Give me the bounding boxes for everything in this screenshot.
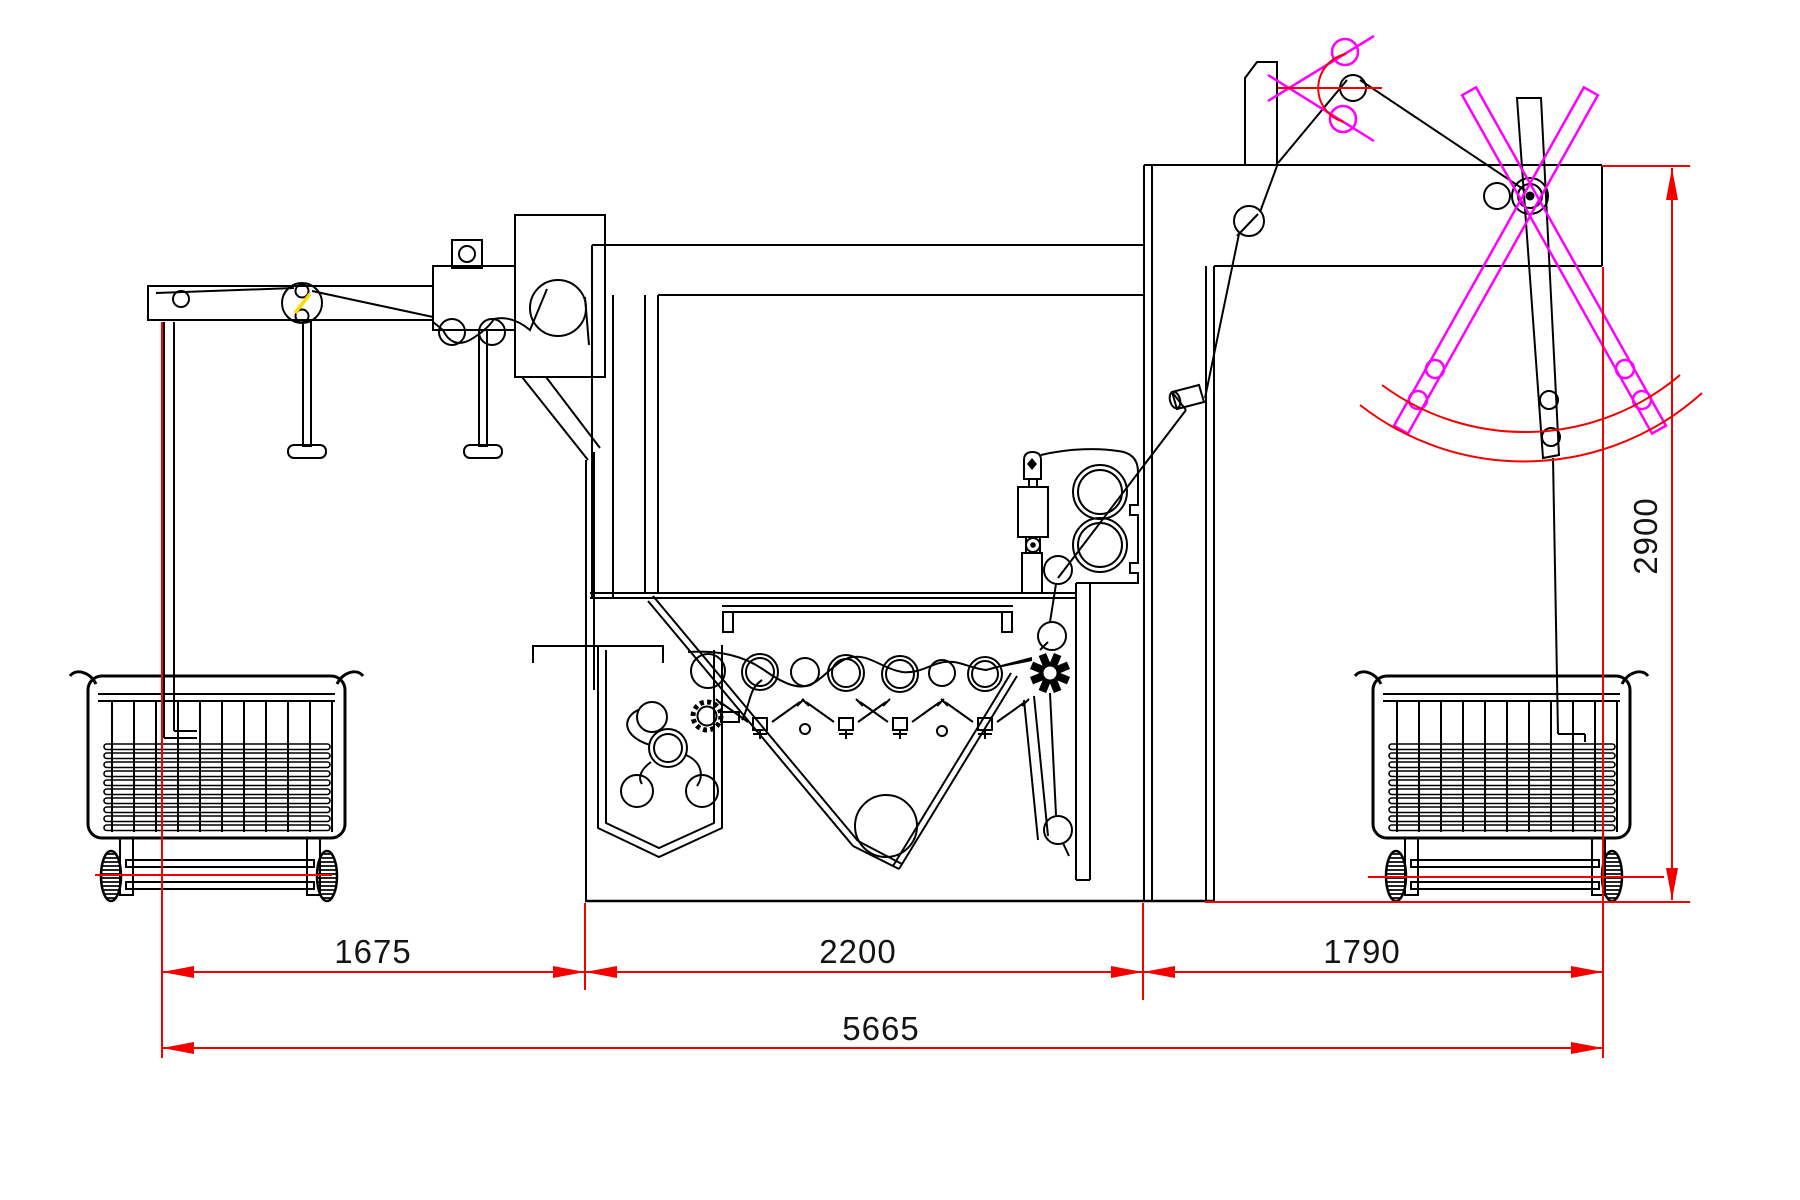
can-changer-alt-positions [1268, 36, 1666, 434]
sliver-drop-line [1553, 458, 1585, 742]
machine-linework [70, 62, 1648, 901]
dim-label-left-span: 1675 [334, 933, 411, 970]
pivot-pulley [1484, 183, 1510, 209]
calender-roller-bottom [1073, 518, 1127, 572]
calender-roller-top [1073, 465, 1127, 519]
technical-drawing: 1675 2200 1790 5665 2900 [0, 0, 1800, 1200]
sliver-can-left [70, 672, 363, 901]
dimension-layer [95, 54, 1702, 1058]
dim-label-center-span: 2200 [819, 933, 896, 970]
funnel-wheel [855, 795, 917, 857]
technical-drawing-canvas: 1675 2200 1790 5665 2900 [0, 0, 1800, 1200]
valve-dot [1027, 458, 1037, 470]
swing-arm-position-left [1394, 87, 1598, 433]
can-changer-arm [1517, 98, 1559, 458]
left-chute [598, 645, 722, 857]
dim-label-height: 2900 [1627, 497, 1664, 574]
pneumatic-cylinder [1018, 487, 1048, 537]
star-wheel [1030, 653, 1070, 693]
dim-label-total-span: 5665 [842, 1010, 919, 1047]
creel-assembly [148, 215, 605, 458]
dim-label-right-span: 1790 [1323, 933, 1400, 970]
dimension-labels: 1675 2200 1790 5665 2900 [334, 497, 1664, 1047]
sliver-can-right [1355, 672, 1648, 901]
creel-pulley-small [173, 291, 189, 307]
delivery-chute [1024, 696, 1069, 856]
swing-arm-position-right [1462, 87, 1666, 433]
drafting-section [533, 596, 1072, 869]
